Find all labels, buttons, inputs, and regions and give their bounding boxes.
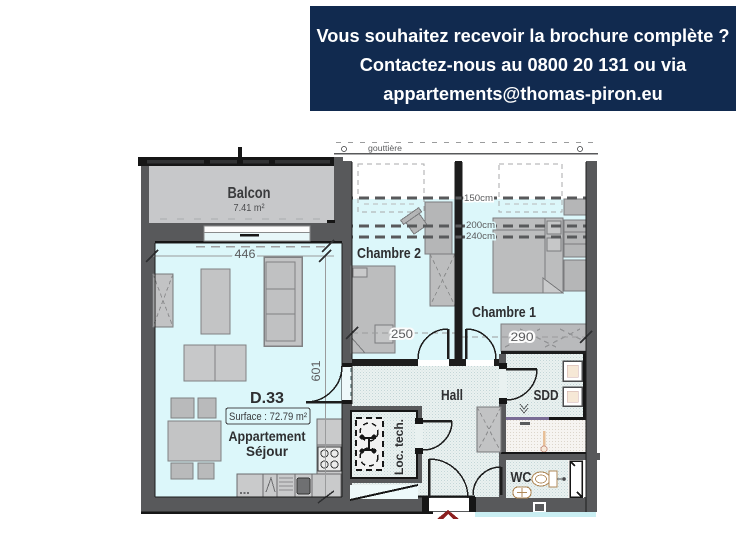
svg-text:Séjour: Séjour (246, 443, 289, 459)
svg-text:WC: WC (511, 470, 532, 486)
svg-text:gouttière: gouttière (368, 143, 402, 153)
svg-text:Chambre 2: Chambre 2 (357, 245, 421, 262)
svg-text:Appartement: Appartement (229, 428, 306, 444)
svg-text:150cm: 150cm (464, 193, 493, 203)
svg-text:Loc. tech.: Loc. tech. (392, 419, 406, 475)
svg-text:250: 250 (391, 329, 413, 341)
svg-text:Surface : 72.79 m²: Surface : 72.79 m² (229, 411, 307, 423)
svg-text:Balcon: Balcon (228, 185, 271, 202)
svg-text:601: 601 (311, 361, 323, 382)
svg-text:Chambre 1: Chambre 1 (472, 304, 536, 321)
svg-text:SDD: SDD (534, 387, 559, 404)
svg-text:446: 446 (235, 249, 256, 261)
svg-text:200cm: 200cm (466, 220, 495, 230)
svg-text:D.33: D.33 (250, 390, 284, 407)
svg-text:290: 290 (511, 332, 534, 344)
svg-text:7.41 m²: 7.41 m² (234, 202, 265, 214)
svg-text:240cm: 240cm (466, 231, 495, 241)
svg-text:Hall: Hall (441, 387, 463, 404)
